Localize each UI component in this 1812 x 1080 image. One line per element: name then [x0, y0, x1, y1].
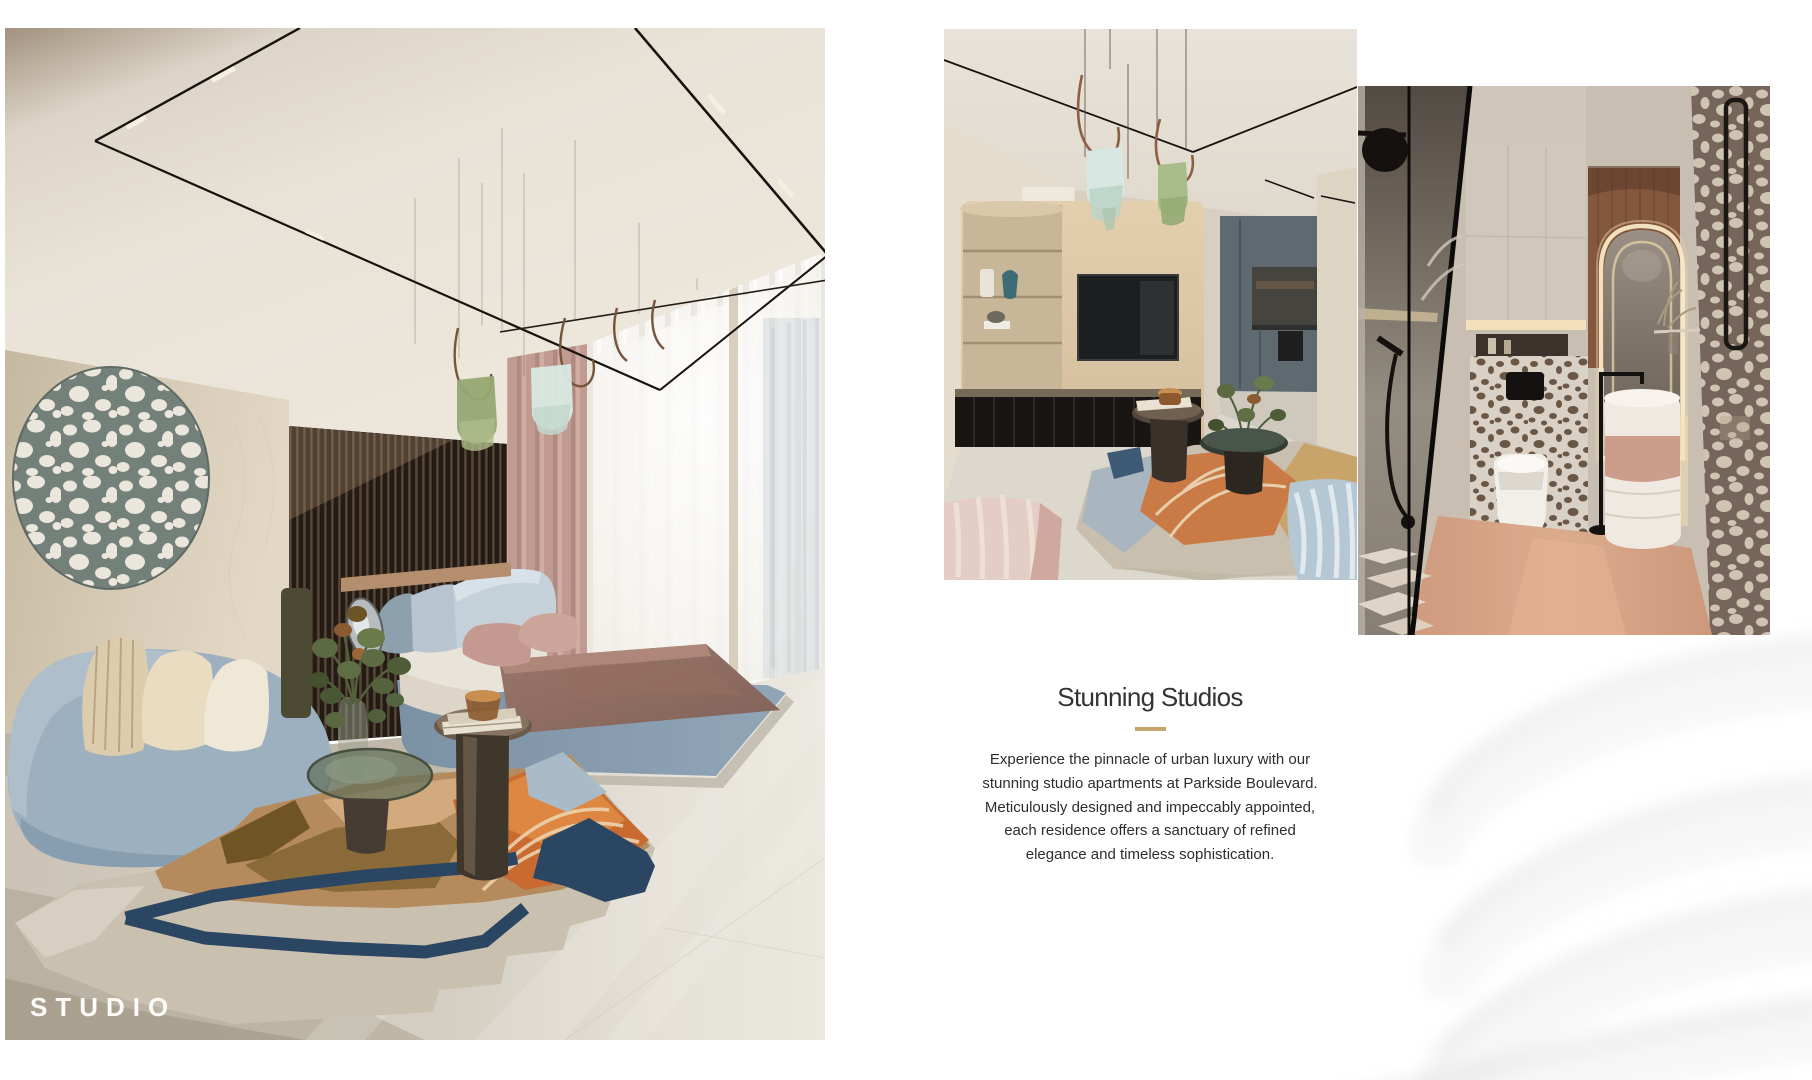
svg-text:STUDIO: STUDIO: [30, 992, 176, 1022]
